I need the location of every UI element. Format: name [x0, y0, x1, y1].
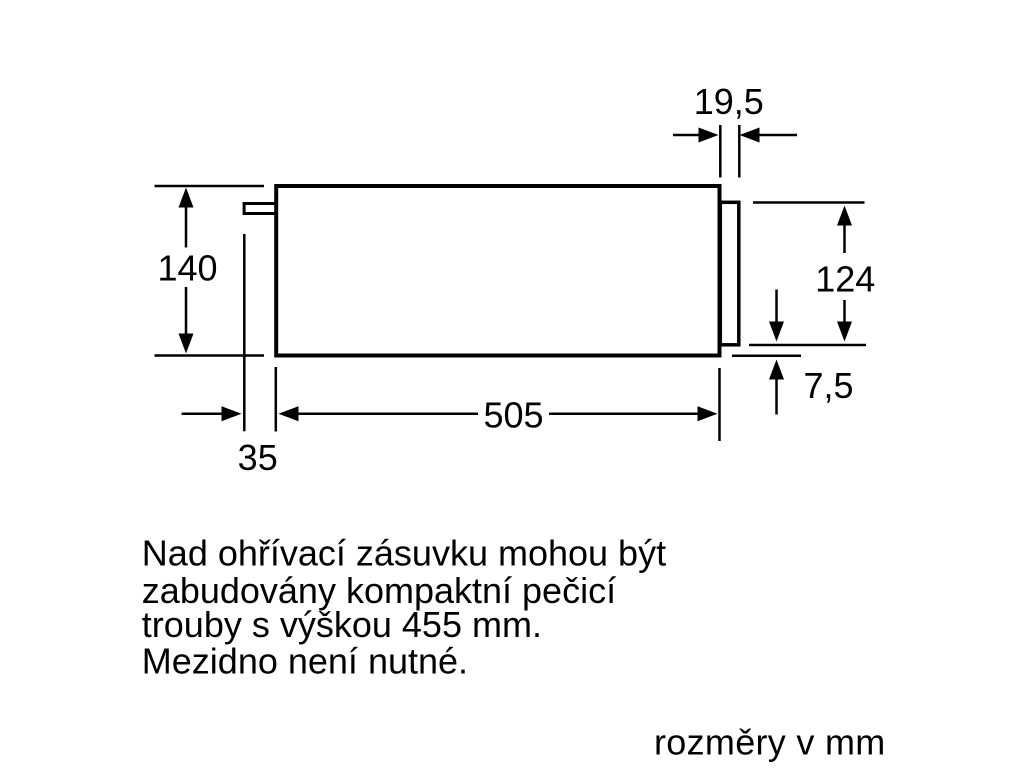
svg-text:trouby s výškou 455 mm.: trouby s výškou 455 mm. — [142, 604, 542, 645]
svg-text:124: 124 — [815, 259, 875, 300]
svg-text:rozměry v mm: rozměry v mm — [654, 722, 886, 763]
svg-text:140: 140 — [157, 248, 217, 289]
svg-text:Mezidno není nutné.: Mezidno není nutné. — [142, 640, 468, 681]
svg-text:505: 505 — [483, 395, 543, 436]
svg-text:7,5: 7,5 — [804, 365, 854, 406]
svg-text:35: 35 — [238, 437, 278, 478]
svg-text:Nad ohřívací zásuvku mohou být: Nad ohřívací zásuvku mohou být — [142, 533, 666, 574]
svg-text:19,5: 19,5 — [694, 81, 764, 122]
